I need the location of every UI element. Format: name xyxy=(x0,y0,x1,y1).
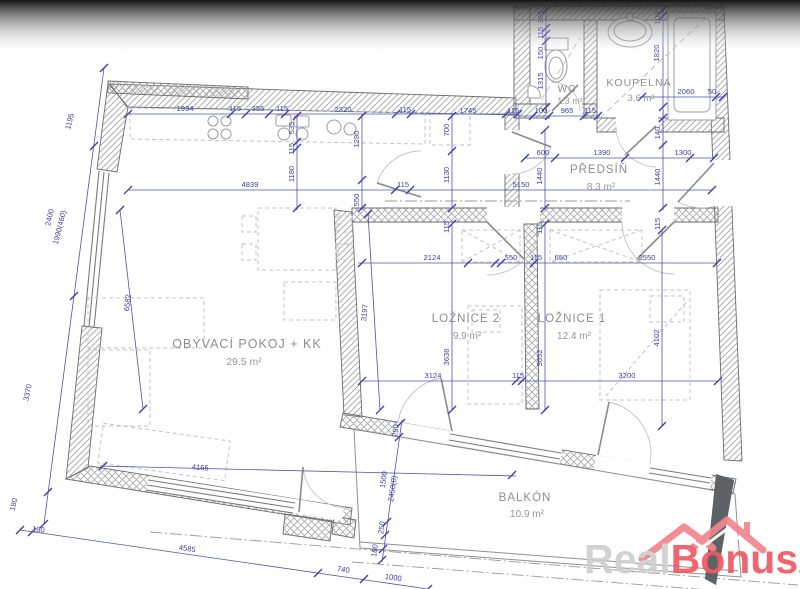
dimension-label: 115 xyxy=(530,253,542,262)
dimension-label: 115 xyxy=(276,104,288,113)
dimension-label: 140 xyxy=(653,127,662,140)
dimension-label: 115 xyxy=(653,218,662,230)
dimension-label: 1440 xyxy=(653,169,662,186)
room-area-bedroom2: 9.9 m² xyxy=(453,331,482,342)
dimension-label: 1440 xyxy=(535,168,544,185)
dimension-label: 2550 xyxy=(639,253,656,262)
side-table xyxy=(284,282,336,320)
dimension-label: 1300 xyxy=(675,148,692,157)
room-label-balcony: BALKÓN xyxy=(499,491,552,504)
dimension-label: 3652 xyxy=(535,350,544,367)
room-area-balcony: 10.9 m² xyxy=(510,509,545,520)
dimension-label: 1130 xyxy=(442,167,451,183)
dimension-tick xyxy=(16,526,24,534)
dimension-label: 180 xyxy=(369,544,380,558)
dimension-label: 1000 xyxy=(384,572,402,583)
room-label-hall: PŘEDSÍŇ xyxy=(570,163,628,176)
scan-shadow-gradient xyxy=(0,0,800,55)
room-label-bedroom2: LOŽNICE 2 xyxy=(432,312,500,325)
watermark-text: RealBonus.cz xyxy=(584,536,800,582)
dimension-label: 1315 xyxy=(536,73,545,90)
door-bedroom2-balcony xyxy=(398,378,452,431)
watermark: RealBonus.cz xyxy=(584,520,800,582)
dimension-label: 3200 xyxy=(619,371,636,380)
balcony-slab xyxy=(150,201,798,589)
watermark-bonus: Bonus xyxy=(671,536,799,582)
dimension-label: 4839 xyxy=(242,180,259,189)
dimension-tick xyxy=(378,556,386,564)
dimension-label: 100 xyxy=(535,106,548,115)
dimension-label: 355 xyxy=(252,104,265,113)
dimension-label: 4585 xyxy=(178,543,196,554)
dimension-label: 3370 xyxy=(21,383,33,401)
dimension-label: 2320 xyxy=(335,105,352,114)
dimension-line xyxy=(100,466,516,476)
bed-bedroom1 xyxy=(600,290,690,400)
room-area-bedroom1: 12.4 m² xyxy=(557,331,592,342)
door-entrance xyxy=(678,163,716,208)
dimension-label: 250 xyxy=(390,424,401,438)
dimension-label: 115 xyxy=(507,106,519,115)
wall-left-lower xyxy=(66,326,102,479)
kitchen-hob xyxy=(208,116,231,139)
dimension-tick xyxy=(379,545,387,553)
dimension-label: 115 xyxy=(287,143,296,155)
dimension-label: 1390 xyxy=(594,148,611,157)
room-area-wc: 1.3 m² xyxy=(557,96,583,106)
room-label-living: OBÝVACÍ POKOJ + KK xyxy=(172,336,321,351)
room-area-living: 29.5 m² xyxy=(226,356,262,368)
scanned-floor-plan-page: 1934115355115232011517451151009651153651… xyxy=(0,0,800,589)
dimension-label: 50 xyxy=(708,87,716,96)
dimension-label: 965 xyxy=(561,106,574,115)
dimension-label: 180 xyxy=(31,524,45,535)
floor-plan-drawing: 1934115355115232011517451151009651153651… xyxy=(0,0,800,589)
room-label-bedroom1: LOŽNICE 1 xyxy=(538,312,606,325)
room-label-wc: WC xyxy=(558,84,577,95)
dimension-label: 115 xyxy=(584,106,596,115)
dimension-label: 1280 xyxy=(352,131,361,148)
chair xyxy=(242,244,256,260)
dimension-label: 600 xyxy=(537,148,550,157)
dimension-label: 115 xyxy=(229,104,241,113)
dimension-label: 115 xyxy=(512,371,524,380)
dimension-label: 115 xyxy=(535,222,544,234)
dining-table xyxy=(258,208,336,270)
dimension-label: 3197 xyxy=(359,304,370,322)
dimension-label: 2124 xyxy=(424,253,441,262)
dimension-label: 2400 xyxy=(43,208,56,227)
dimension-label: 250 xyxy=(376,521,387,535)
room-area-bathroom: 3.6 m² xyxy=(628,93,655,104)
room-label-bathroom: KOUPELNA xyxy=(606,77,671,89)
dimension-label: 650 xyxy=(555,253,568,262)
room-area-hall: 8.3 m² xyxy=(587,182,616,193)
dimension-label: 550 xyxy=(505,253,518,262)
dimension-label: 115 xyxy=(442,221,451,233)
dimension-label: 115 xyxy=(399,105,411,114)
dimension-label: 550 xyxy=(352,194,361,207)
dimension-tick xyxy=(508,471,516,479)
dimension-label: 115 xyxy=(397,180,409,189)
chair xyxy=(242,216,256,232)
dimension-label: 1934 xyxy=(177,104,194,113)
dimension-label: 2060 xyxy=(678,87,695,96)
dimension-label: 740 xyxy=(336,564,350,575)
watermark-real: Real xyxy=(584,536,671,582)
door-bedroom1-balcony xyxy=(598,402,651,464)
dimension-label: 180 xyxy=(8,497,19,511)
dimension-label: 3124 xyxy=(425,371,442,380)
dimension-line xyxy=(20,530,428,589)
dimension-label: 1195 xyxy=(63,112,76,130)
dimension-label: 3636 xyxy=(442,349,451,366)
dimension-label: 5150 xyxy=(513,180,530,189)
dimension-label: 1180 xyxy=(287,166,296,182)
dimension-label: 535 xyxy=(287,122,296,135)
dimension-label: 1745 xyxy=(460,106,477,115)
dimension-label: 4165 xyxy=(191,462,209,472)
dimension-label: 700 xyxy=(442,124,451,137)
dimension-label: 4102 xyxy=(652,330,661,347)
wall-living-bedroom2 xyxy=(334,210,362,417)
